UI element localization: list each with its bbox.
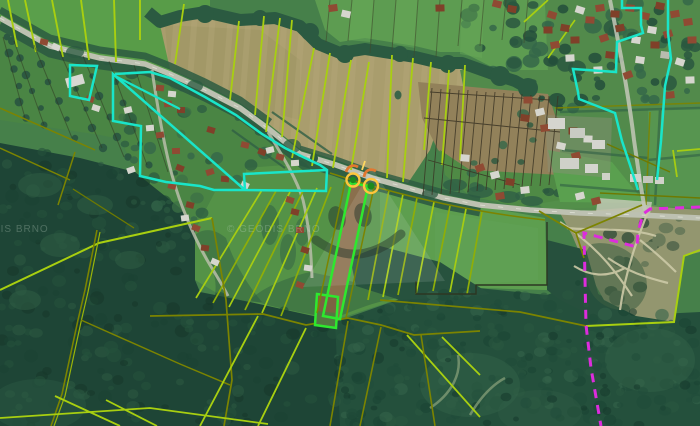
svg-text:© GEODIS BRNO: © GEODIS BRNO: [227, 224, 321, 235]
svg-text:© GEODIS BRNO: © GEODIS BRNO: [0, 224, 49, 235]
